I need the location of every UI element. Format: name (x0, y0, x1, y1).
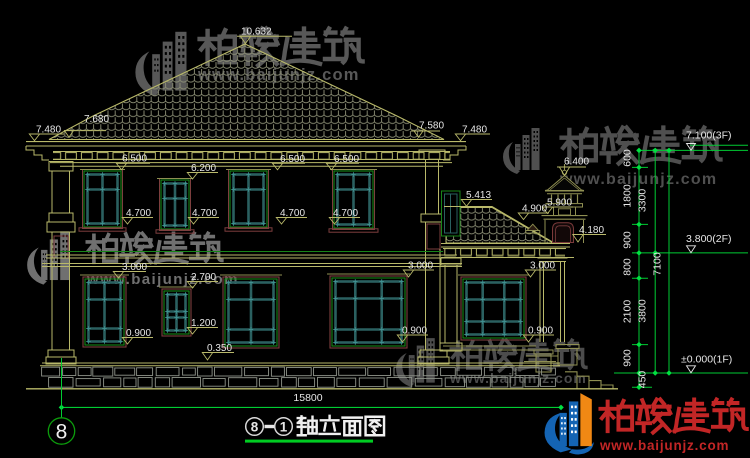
svg-text:3800: 3800 (637, 299, 649, 323)
svg-text:7.580: 7.580 (419, 121, 444, 132)
svg-text:7.680: 7.680 (84, 114, 109, 125)
svg-text:8: 8 (251, 420, 259, 435)
svg-text:7.100(3F): 7.100(3F) (686, 130, 732, 142)
svg-text:www.baijunjz.com: www.baijunjz.com (559, 171, 717, 188)
svg-text:8: 8 (56, 421, 68, 444)
svg-text:900: 900 (622, 231, 634, 249)
svg-text:7100: 7100 (652, 252, 664, 276)
svg-text:1800: 1800 (622, 184, 634, 208)
svg-text:450: 450 (637, 371, 649, 389)
svg-text:1: 1 (280, 420, 288, 435)
svg-text:800: 800 (622, 258, 634, 276)
svg-text:±0.000(1F): ±0.000(1F) (681, 354, 732, 366)
svg-text:2100: 2100 (622, 300, 634, 324)
svg-text:3300: 3300 (637, 189, 649, 213)
svg-text:www.baijunjz.com: www.baijunjz.com (449, 370, 587, 386)
svg-text:600: 600 (622, 149, 634, 167)
svg-text:6.400: 6.400 (564, 157, 589, 168)
svg-text:900: 900 (622, 349, 634, 367)
svg-text:15800: 15800 (293, 392, 322, 404)
svg-text:3.800(2F): 3.800(2F) (686, 233, 732, 245)
svg-text:www.baijunjz.com: www.baijunjz.com (599, 438, 729, 453)
